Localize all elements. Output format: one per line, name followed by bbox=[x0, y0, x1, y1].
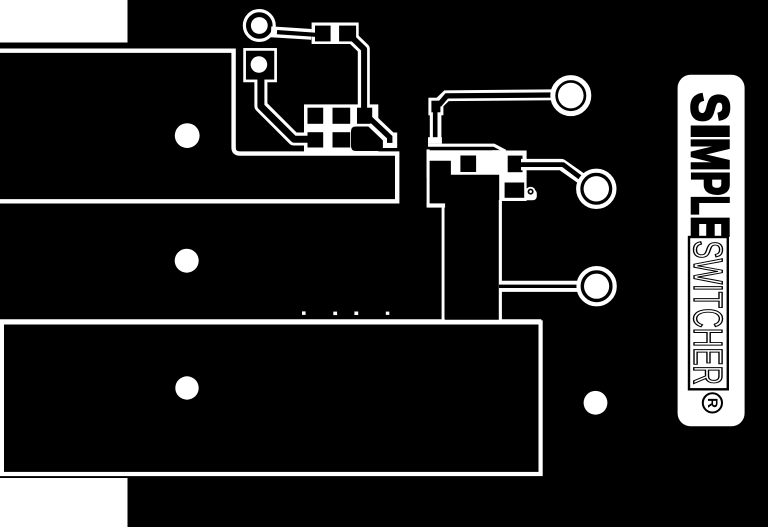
svg-text:M: M bbox=[680, 138, 739, 171]
svg-text:E: E bbox=[680, 216, 739, 238]
svg-text:SWITCHER: SWITCHER bbox=[685, 241, 731, 386]
svg-text:P: P bbox=[680, 171, 739, 195]
svg-text:S: S bbox=[680, 93, 739, 122]
svg-text:L: L bbox=[680, 196, 739, 215]
svg-text:R: R bbox=[705, 398, 721, 408]
